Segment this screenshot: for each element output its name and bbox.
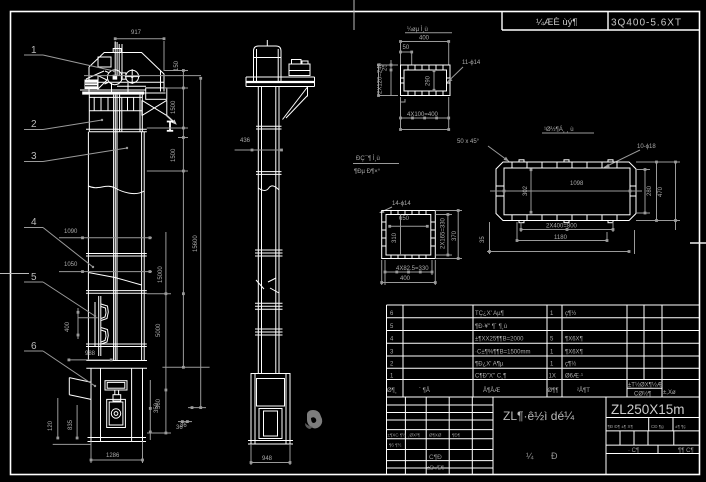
svg-text:280: 280: [647, 185, 653, 196]
svg-text:360: 360: [156, 398, 162, 409]
svg-text:50 x 45°: 50 x 45°: [457, 139, 480, 145]
svg-text:150: 150: [174, 60, 180, 71]
svg-text:¶6 ¶½: ¶6 ¶½: [389, 442, 402, 448]
svg-text:±¶XX25¶¶B=2000: ±¶XX25¶¶B=2000: [475, 337, 524, 343]
svg-text:Ø¶XØ: Ø¶XØ: [429, 433, 442, 438]
svg-text:¹Ø½¶Á¸ ¸ ù: ¹Ø½¶Á¸ ¸ ù: [544, 126, 574, 133]
svg-text:400: 400: [400, 276, 411, 282]
svg-text:¼ÆÈ ùý¶: ¼ÆÈ ùý¶: [536, 17, 578, 28]
svg-text:ZL¶·ê½ì dé¼: ZL¶·ê½ì dé¼: [503, 409, 575, 423]
svg-text:¶Ð¿X' A¶µ: ¶Ð¿X' A¶µ: [475, 362, 504, 368]
svg-text:835: 835: [68, 419, 74, 430]
svg-text:¶Ðµ Ð¶×°: ¶Ðµ Ð¶×°: [354, 169, 381, 175]
svg-text:±T½ØX¶½Æ: ±T½ØX¶½Æ: [628, 382, 663, 389]
svg-text:436: 436: [240, 138, 251, 144]
svg-text:310: 310: [392, 232, 398, 243]
svg-text:400: 400: [65, 321, 71, 332]
svg-text:¼øµ Ì¸ù: ¼øµ Ì¸ù: [407, 26, 428, 33]
svg-text:ç¶½: ç¶½: [565, 361, 576, 368]
svg-text:11-ϕ14: 11-ϕ14: [462, 60, 481, 66]
svg-text:Ø6Æ·¹: Ø6Æ·¹: [565, 374, 583, 380]
svg-text:ç¶½: ç¶½: [565, 310, 576, 317]
svg-text:¶Ð·¥" ¶´ ¶¸ù: ¶Ð·¥" ¶´ ¶¸ù: [475, 324, 507, 330]
svg-text:2X165=330: 2X165=330: [441, 217, 447, 249]
svg-text:¶Ð Ð¶ ±¶ X¶: ¶Ð Ð¶ ±¶ X¶: [608, 424, 634, 429]
svg-text:25: 25: [383, 64, 389, 71]
svg-text:5: 5: [31, 272, 37, 283]
svg-text:5000: 5000: [156, 323, 162, 337]
svg-text:±¶ ¶ç: ±¶ ¶ç: [675, 424, 687, 429]
svg-text:917: 917: [131, 30, 142, 36]
svg-text:15000: 15000: [158, 266, 164, 283]
svg-text:´ ¶Å: ´ ¶Å: [419, 387, 430, 394]
svg-text:1500: 1500: [171, 148, 177, 162]
svg-text:6: 6: [31, 341, 37, 352]
svg-text:14-ϕ14: 14-ϕ14: [392, 201, 411, 207]
svg-text:1X: 1X: [549, 374, 556, 380]
svg-text:CÐ ¶g: CÐ ¶g: [651, 424, 664, 429]
svg-text:290: 290: [426, 75, 432, 86]
svg-text:¶Ð¶: ¶Ð¶: [452, 433, 461, 438]
svg-text:50: 50: [403, 45, 410, 51]
svg-text:¶¶ C¶: ¶¶ C¶: [678, 448, 694, 454]
svg-text:400: 400: [419, 36, 430, 42]
svg-text:C¶Ð"X" C¸¶: C¶Ð"X" C¸¶: [475, 374, 506, 380]
svg-text:36: 36: [180, 423, 187, 429]
svg-text:·C±¶%¶¶B=1500mm: ·C±¶%¶¶B=1500mm: [475, 349, 530, 355]
svg-text:¶X6X¶: ¶X6X¶: [565, 337, 583, 343]
svg-text:±¶XC ¶½: ±¶XC ¶½: [388, 432, 407, 438]
svg-text:470: 470: [658, 186, 664, 197]
svg-text:10-ϕ18: 10-ϕ18: [637, 144, 656, 150]
svg-text:370: 370: [452, 230, 458, 241]
svg-text:C¶Ð: C¶Ð: [429, 454, 442, 461]
svg-text:988: 988: [85, 351, 96, 357]
svg-text:35: 35: [480, 236, 486, 243]
svg-text:ÐÇ¯¶ Ì¸ù: ÐÇ¯¶ Ì¸ù: [356, 155, 380, 162]
svg-text:948: 948: [262, 456, 273, 462]
svg-text:1286: 1286: [106, 453, 120, 459]
svg-text:2: 2: [31, 119, 37, 130]
svg-text:²Å¶T: ²Å¶T: [577, 387, 590, 394]
svg-text:±,Xø: ±,Xø: [663, 390, 676, 396]
svg-text:1090: 1090: [64, 229, 78, 235]
svg-text:2X400=800: 2X400=800: [546, 224, 578, 230]
svg-text:TÇ¿X' Aµ¶: TÇ¿X' Aµ¶: [475, 311, 504, 317]
svg-text:1500: 1500: [171, 100, 177, 114]
svg-text:· C¶: · C¶: [628, 448, 639, 454]
svg-text:3: 3: [31, 151, 37, 162]
svg-text:1: 1: [31, 45, 37, 56]
svg-text:Ø¶¸: Ø¶¸: [387, 388, 397, 394]
svg-text:Ø¶¶: Ø¶¶: [548, 388, 559, 394]
svg-text:120: 120: [48, 420, 54, 431]
svg-text:CØ½¶: CØ½¶: [634, 391, 651, 398]
svg-text:¼: ¼: [526, 451, 534, 461]
svg-text:±Ð Æ¶: ±Ð Æ¶: [427, 466, 444, 472]
svg-text:4X82.5=330: 4X82.5=330: [396, 266, 429, 272]
svg-text:1098: 1098: [570, 181, 584, 187]
svg-text:15600: 15600: [193, 235, 199, 252]
svg-text:¶X6X¶: ¶X6X¶: [565, 349, 583, 355]
svg-text:4: 4: [31, 217, 37, 228]
svg-text:Å¶ÅÆ: Å¶ÅÆ: [483, 387, 500, 394]
svg-text:302: 302: [523, 185, 529, 196]
svg-text:3Q400-5.6XT: 3Q400-5.6XT: [611, 18, 682, 29]
svg-text:Ð: Ð: [551, 451, 558, 461]
svg-text:ZL250X15m: ZL250X15m: [611, 402, 685, 417]
svg-text:1050: 1050: [64, 262, 78, 268]
